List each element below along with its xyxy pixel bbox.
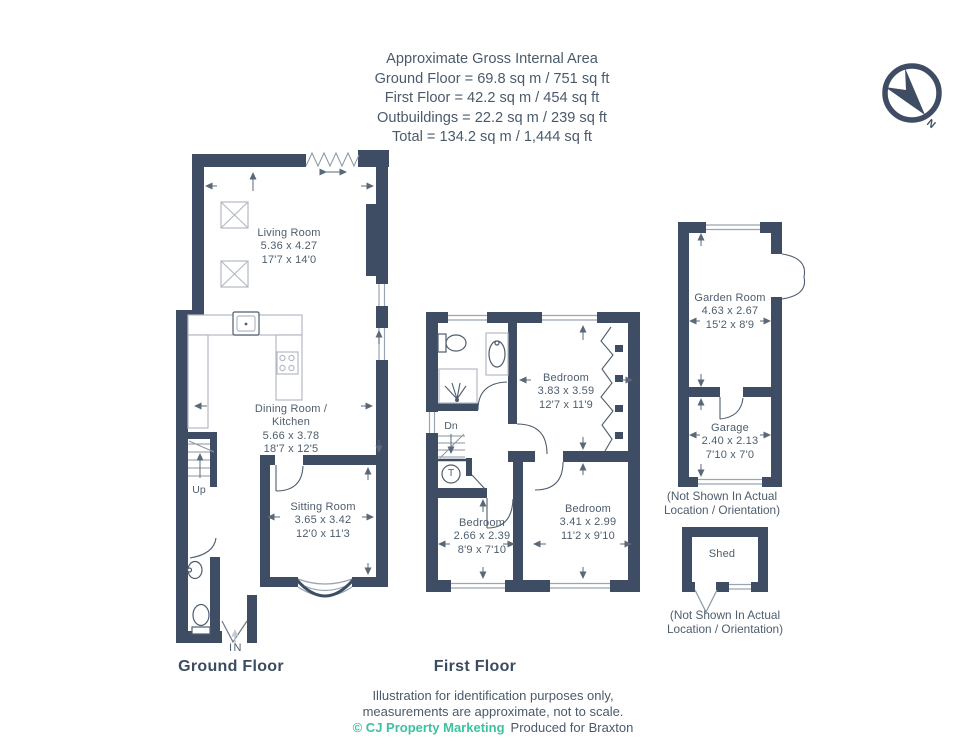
wardrobe-icon xyxy=(601,327,623,451)
room-imperial: 12'0 x 11'3 xyxy=(290,528,355,541)
disclaimer-line-1: Illustration for identification purposes… xyxy=(353,688,634,704)
room-metric: 3.83 x 3.59 xyxy=(538,385,595,398)
room-name: Dining Room / xyxy=(255,403,327,416)
entrance-door-icon xyxy=(222,621,247,644)
wc-door-icon xyxy=(190,538,216,558)
area-first-floor: First Floor = 42.2 sq m / 454 sq ft xyxy=(375,89,610,109)
garden-room-window xyxy=(706,225,760,230)
room-name: Bedroom xyxy=(538,372,595,385)
sitting-room-label: Sitting Room 3.65 x 3.42 12'0 x 11'3 xyxy=(290,501,355,541)
sitting-room-door-icon xyxy=(276,465,303,491)
garden-room-label: Garden Room 4.63 x 2.67 15'2 x 8'9 xyxy=(694,292,765,332)
stairs-down xyxy=(438,434,465,458)
disclaimer-line-3: © CJ Property MarketingProduced for Brax… xyxy=(353,720,634,736)
room-metric: 2.66 x 2.39 xyxy=(454,530,511,543)
room-name: Bedroom xyxy=(454,517,511,530)
room-name: Bedroom xyxy=(560,503,617,516)
bifold-doors-icon xyxy=(306,153,359,172)
area-summary: Approximate Gross Internal Area Ground F… xyxy=(375,50,610,148)
room-imperial: 12'7 x 11'9 xyxy=(538,399,595,412)
living-room-window xyxy=(379,284,385,306)
room-imperial: 15'2 x 8'9 xyxy=(694,319,765,332)
room-name: Sitting Room xyxy=(290,501,355,514)
note-line-2: Location / Orientation) xyxy=(667,623,783,637)
garden-room-double-doors-icon xyxy=(782,254,805,299)
garage-door-icon xyxy=(720,397,743,419)
note-line-2: Location / Orientation) xyxy=(664,504,780,518)
stairs-up-label: Up xyxy=(192,484,205,496)
bay-window xyxy=(297,579,353,596)
disclaimer-line-2: measurements are approximate, not to sca… xyxy=(353,704,634,720)
bathroom-door-icon xyxy=(478,382,507,410)
room-metric: 3.65 x 3.42 xyxy=(290,514,355,527)
disclaimer: Illustration for identification purposes… xyxy=(353,688,634,735)
room-imperial: 11'2 x 9'10 xyxy=(560,530,617,543)
basin-icon xyxy=(486,333,508,375)
dining-kitchen-label: Dining Room / Kitchen 5.66 x 3.78 18'7 x… xyxy=(255,403,327,456)
wc-toilet-icon xyxy=(192,605,210,635)
living-room-label: Living Room 5.36 x 4.27 17'7 x 14'0 xyxy=(257,227,320,267)
stairs-down-label: Dn xyxy=(444,420,457,432)
garage-location-note: (Not Shown In Actual Location / Orientat… xyxy=(664,490,780,518)
compass-icon xyxy=(885,66,939,120)
outbuildings-plan xyxy=(678,222,805,612)
room-metric: 2.40 x 2.13 xyxy=(702,435,759,448)
room-name: Garage xyxy=(702,422,759,435)
room-metric: 4.63 x 2.67 xyxy=(694,305,765,318)
room-metric: 5.66 x 3.78 xyxy=(255,430,327,443)
toilet-icon xyxy=(438,334,466,352)
area-summary-title: Approximate Gross Internal Area xyxy=(375,50,610,70)
room-metric: 5.36 x 4.27 xyxy=(257,240,320,253)
bedroom-3-label: Bedroom 3.41 x 2.99 11'2 x 9'10 xyxy=(560,503,617,543)
sink-icon xyxy=(233,312,259,335)
room-name: Garden Room xyxy=(694,292,765,305)
room-imperial: 7'10 x 7'0 xyxy=(702,449,759,462)
room-imperial: 17'7 x 14'0 xyxy=(257,254,320,267)
garage-label: Garage 2.40 x 2.13 7'10 x 7'0 xyxy=(702,422,759,462)
bedroom-1-label: Bedroom 3.83 x 3.59 12'7 x 11'9 xyxy=(538,372,595,412)
hob-icon xyxy=(277,352,298,374)
room-metric: 3.41 x 2.99 xyxy=(560,516,617,529)
shed-label: Shed xyxy=(709,548,736,561)
shed-location-note: (Not Shown In Actual Location / Orientat… xyxy=(667,609,783,637)
entrance-in-label: IN xyxy=(229,642,243,654)
room-imperial: 18'7 x 12'5 xyxy=(255,443,327,456)
area-total: Total = 134.2 sq m / 1,444 sq ft xyxy=(375,128,610,148)
room-imperial: 8'9 x 7'10 xyxy=(454,544,511,557)
shower-icon xyxy=(439,369,477,403)
room-name-2: Kitchen xyxy=(255,416,327,429)
room-name: Living Room xyxy=(257,227,320,240)
shed-window xyxy=(729,585,751,590)
rooflight-icon xyxy=(221,202,248,287)
ground-floor-plan xyxy=(176,150,389,644)
ground-floor-title: Ground Floor xyxy=(178,658,284,676)
note-line-1: (Not Shown In Actual xyxy=(667,609,783,623)
area-ground-floor: Ground Floor = 69.8 sq m / 751 sq ft xyxy=(375,70,610,90)
dining-room-window xyxy=(379,328,385,360)
produced-for: Produced for Braxton xyxy=(511,720,634,735)
bedroom1-door-icon xyxy=(517,424,547,454)
wc-basin-icon xyxy=(188,562,203,579)
bedroom3-door-icon xyxy=(535,462,563,490)
tank-label: T xyxy=(448,468,454,479)
area-outbuildings: Outbuildings = 22.2 sq m / 239 sq ft xyxy=(375,109,610,129)
copyright-credit: © CJ Property Marketing xyxy=(353,720,505,735)
first-floor-title: First Floor xyxy=(434,658,516,676)
bedroom-2-label: Bedroom 2.66 x 2.39 8'9 x 7'10 xyxy=(454,517,511,557)
note-line-1: (Not Shown In Actual xyxy=(664,490,780,504)
garage-vehicle-door xyxy=(698,480,762,485)
